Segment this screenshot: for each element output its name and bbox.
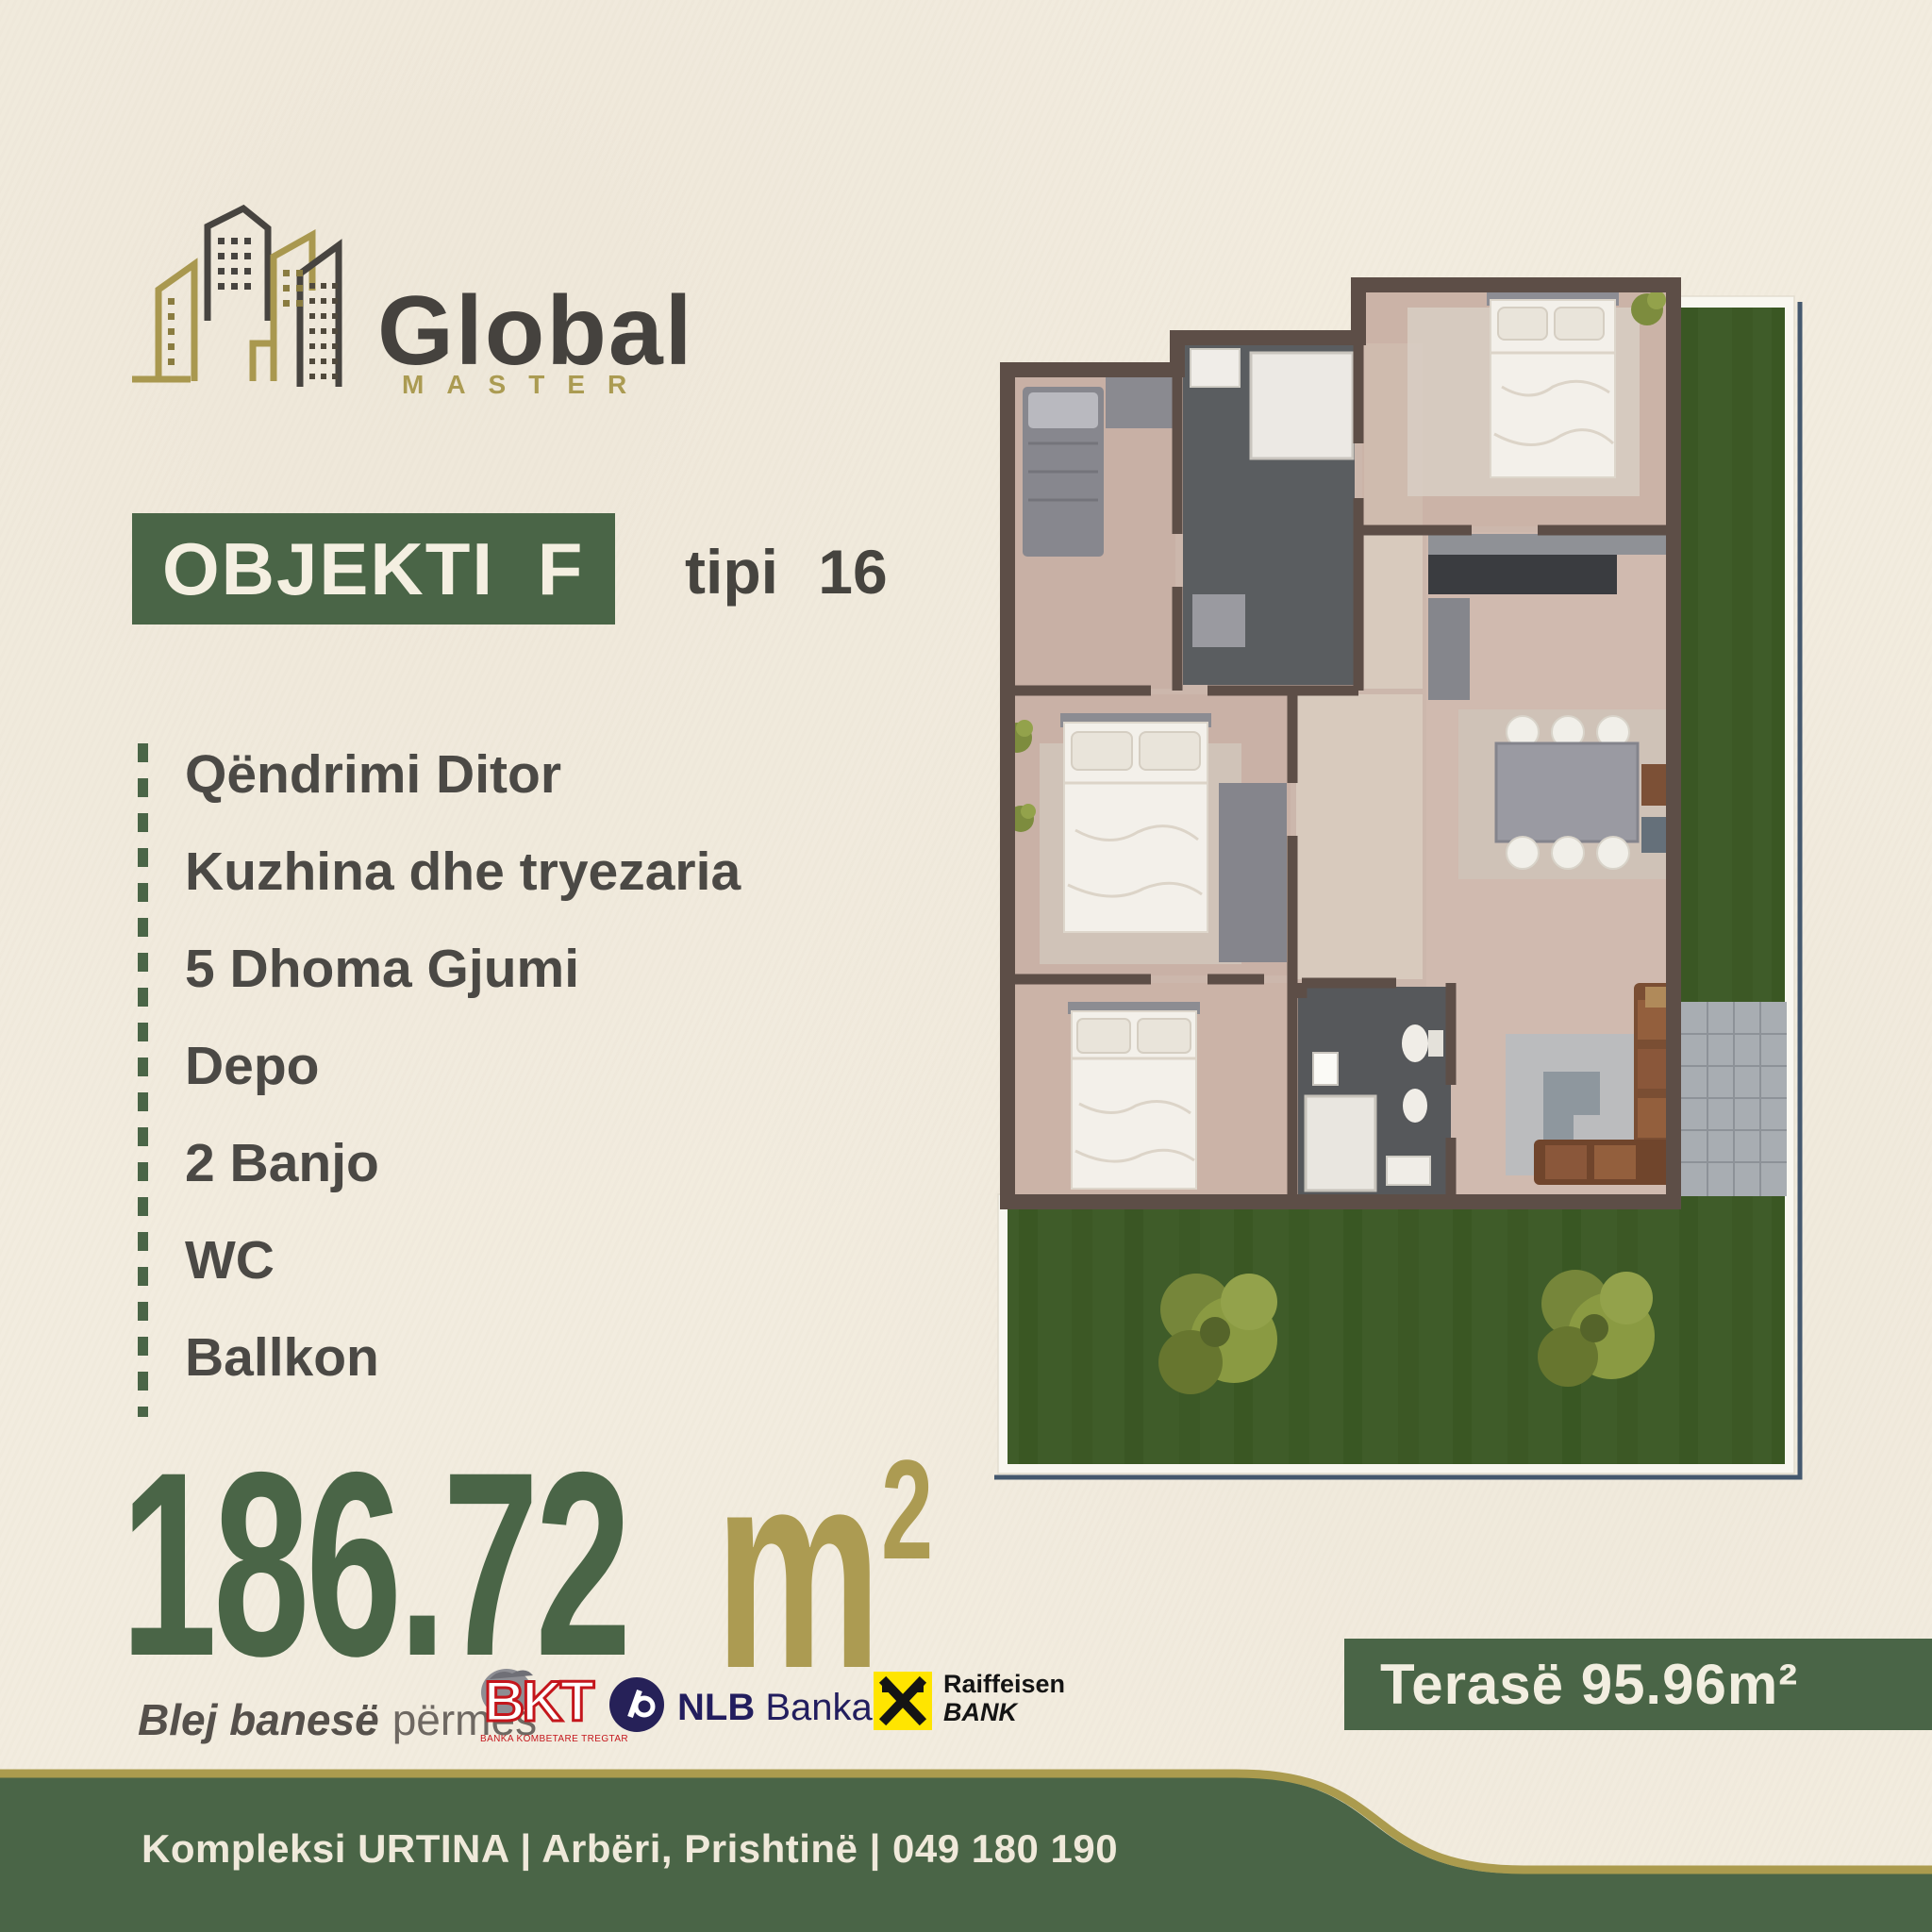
feature-item: Qëndrimi Ditor bbox=[185, 726, 741, 824]
brand-tagline: MASTER bbox=[402, 370, 649, 400]
nlb-bold: NLB bbox=[677, 1687, 755, 1728]
raiffeisen-logo-icon bbox=[874, 1672, 932, 1730]
bkt-subtitle: BANKA KOMBETARE TREGTARE bbox=[480, 1734, 627, 1744]
patio-tiles bbox=[1681, 1002, 1787, 1196]
feature-item: Kuzhina dhe tryezaria bbox=[185, 824, 741, 921]
nlb-rest: Banka bbox=[755, 1687, 873, 1728]
object-label: OBJEKTI F bbox=[132, 513, 615, 625]
footer-contact: Kompleksi URTINA | Arbëri, Prishtinë | 0… bbox=[142, 1826, 1118, 1872]
feature-item: WC bbox=[185, 1212, 741, 1309]
terrace-badge: Terasë 95.96m² bbox=[1344, 1639, 1932, 1730]
dashed-divider bbox=[138, 743, 148, 1417]
feature-item: 5 Dhoma Gjumi bbox=[185, 921, 741, 1018]
feature-item: 2 Banjo bbox=[185, 1115, 741, 1212]
real-estate-flyer: Global MASTER OBJEKTI F tipi 16 Qëndrimi… bbox=[0, 0, 1932, 1932]
area-unit-m: m bbox=[715, 1410, 881, 1727]
nlb-wordmark: NLB Banka bbox=[677, 1687, 873, 1729]
feature-item: Ballkon bbox=[185, 1309, 741, 1407]
type-label: tipi 16 bbox=[685, 536, 888, 608]
feature-list: Qëndrimi Ditor Kuzhina dhe tryezaria 5 D… bbox=[185, 726, 741, 1407]
area-exponent: 2 bbox=[881, 1430, 933, 1589]
raiffeisen-wordmark: Raiffeisen BANK bbox=[943, 1670, 1065, 1726]
floor-plan bbox=[981, 255, 1811, 1481]
financing-lead-bold: Blej banesë bbox=[138, 1695, 379, 1744]
nlb-logo-icon bbox=[609, 1677, 664, 1732]
raiffeisen-top: Raiffeisen bbox=[943, 1670, 1065, 1698]
raiffeisen-bottom: BANK bbox=[943, 1698, 1065, 1726]
bkt-letters: BKT bbox=[484, 1670, 594, 1733]
bkt-logo-icon: BKT BANKA KOMBETARE TREGTARE bbox=[476, 1658, 627, 1764]
feature-item: Depo bbox=[185, 1018, 741, 1115]
buildings-logo-icon bbox=[132, 200, 358, 393]
